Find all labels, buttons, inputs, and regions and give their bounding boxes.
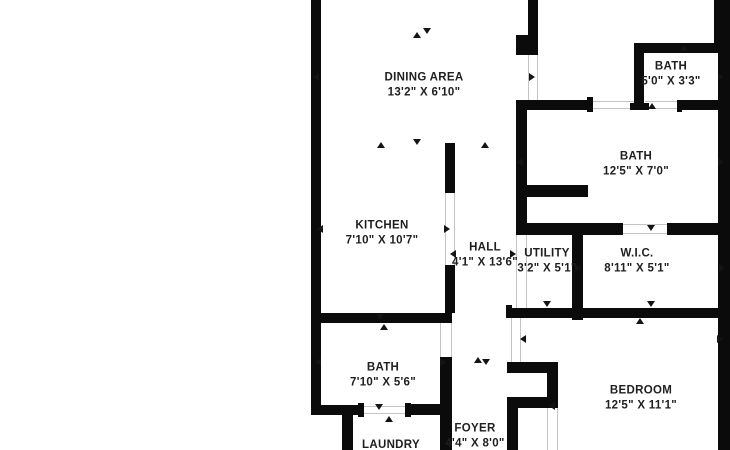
room-name: HALL	[452, 241, 518, 256]
room-name: BATH	[641, 60, 700, 75]
room-label-bath-right: BATH12'5" X 7'0"	[603, 150, 669, 179]
dimension-arrow-icon	[529, 73, 535, 81]
room-label-bedroom: BEDROOM12'5" X 11'1"	[605, 384, 677, 413]
dimension-arrow-icon	[413, 139, 421, 145]
room-dimensions: 5'0" X 3'3"	[641, 74, 700, 89]
dimension-arrow-icon	[385, 416, 393, 422]
dimension-arrow-icon	[317, 225, 323, 233]
dimension-arrow-icon	[315, 358, 321, 366]
door-opening	[363, 406, 407, 414]
dimension-arrow-icon	[482, 359, 490, 365]
dimension-arrow-icon	[543, 301, 551, 307]
dimension-arrow-icon	[444, 225, 450, 233]
dimension-arrow-icon	[423, 28, 431, 34]
room-label-utility: UTILITY3'2" X 5'1"	[517, 247, 576, 276]
wall-segment	[516, 100, 527, 235]
room-name: KITCHEN	[346, 219, 419, 234]
wall-segment	[445, 143, 455, 193]
dimension-arrow-icon	[375, 404, 383, 410]
wall-segment	[518, 185, 588, 197]
wall-segment	[516, 223, 623, 235]
room-name: LAUNDRY	[362, 438, 420, 450]
dimension-arrow-icon	[376, 314, 384, 320]
room-dimensions: 7'10" X 10'7"	[346, 233, 419, 248]
wall-segment	[358, 403, 364, 417]
dimension-arrow-icon	[520, 335, 526, 343]
room-label-bath-top-right: BATH5'0" X 3'3"	[641, 60, 700, 89]
dimension-arrow-icon	[517, 158, 523, 166]
wall-segment	[507, 397, 518, 450]
room-label-bath-left: BATH7'10" X 5'6"	[350, 361, 416, 390]
dimension-arrow-icon	[636, 318, 644, 324]
dimension-arrow-icon	[719, 264, 725, 272]
room-name: BATH	[603, 150, 669, 165]
room-name: FOYER	[445, 422, 504, 437]
wall-segment	[342, 405, 353, 450]
dimension-arrow-icon	[718, 158, 724, 166]
room-name: BEDROOM	[605, 384, 677, 399]
room-name: DINING AREA	[385, 71, 464, 86]
door-opening	[440, 323, 452, 357]
door-opening	[623, 224, 667, 234]
room-name: BATH	[350, 361, 416, 376]
wall-segment	[511, 308, 730, 318]
wall-segment	[516, 100, 591, 110]
dimension-arrow-icon	[717, 335, 723, 343]
door-opening	[591, 101, 635, 109]
room-dimensions: 4'4" X 8'0"	[445, 436, 504, 450]
dimension-arrow-icon	[718, 73, 724, 81]
room-dimensions: 13'2" X 6'10"	[385, 85, 464, 100]
dimension-arrow-icon	[313, 73, 319, 81]
floor-plan: DINING AREA13'2" X 6'10"KITCHEN7'10" X 1…	[0, 0, 730, 450]
dimension-arrow-icon	[413, 32, 421, 38]
room-label-laundry: LAUNDRY	[362, 438, 420, 450]
wall-segment	[682, 100, 730, 110]
room-dimensions: 7'10" X 5'6"	[350, 375, 416, 390]
dimension-arrow-icon	[474, 357, 482, 363]
wall-segment	[506, 305, 512, 318]
room-dimensions: 3'2" X 5'1"	[517, 261, 576, 276]
room-label-dining-area: DINING AREA13'2" X 6'10"	[385, 71, 464, 100]
wall-segment	[587, 97, 593, 112]
room-label-hall: HALL4'1" X 13'6"	[452, 241, 518, 270]
wall-segment	[630, 103, 649, 110]
room-name: UTILITY	[517, 247, 576, 262]
wall-segment	[677, 100, 682, 112]
room-dimensions: 8'11" X 5'1"	[604, 261, 669, 276]
room-dimensions: 12'5" X 7'0"	[603, 164, 669, 179]
dimension-arrow-icon	[680, 45, 688, 51]
wall-segment	[445, 265, 455, 313]
wall-segment	[516, 35, 538, 55]
dimension-arrow-icon	[481, 142, 489, 148]
dimension-arrow-icon	[648, 103, 656, 109]
wall-segment	[667, 223, 730, 235]
room-dimensions: 4'1" X 13'6"	[452, 255, 518, 270]
room-name: W.I.C.	[604, 247, 669, 262]
dimension-arrow-icon	[380, 324, 388, 330]
room-dimensions: 12'5" X 11'1"	[605, 398, 677, 413]
room-label-foyer: FOYER4'4" X 8'0"	[445, 422, 504, 450]
room-label-kitchen: KITCHEN7'10" X 10'7"	[346, 219, 419, 248]
wall-segment	[311, 405, 363, 415]
door-opening	[547, 408, 558, 450]
dimension-arrow-icon	[377, 142, 385, 148]
dimension-arrow-icon	[647, 225, 655, 231]
wall-segment	[311, 0, 321, 415]
dimension-arrow-icon	[549, 402, 555, 410]
room-label-wic: W.I.C.8'11" X 5'1"	[604, 247, 669, 276]
wall-segment	[405, 403, 411, 417]
dimension-arrow-icon	[440, 358, 446, 366]
dimension-arrow-icon	[647, 301, 655, 307]
